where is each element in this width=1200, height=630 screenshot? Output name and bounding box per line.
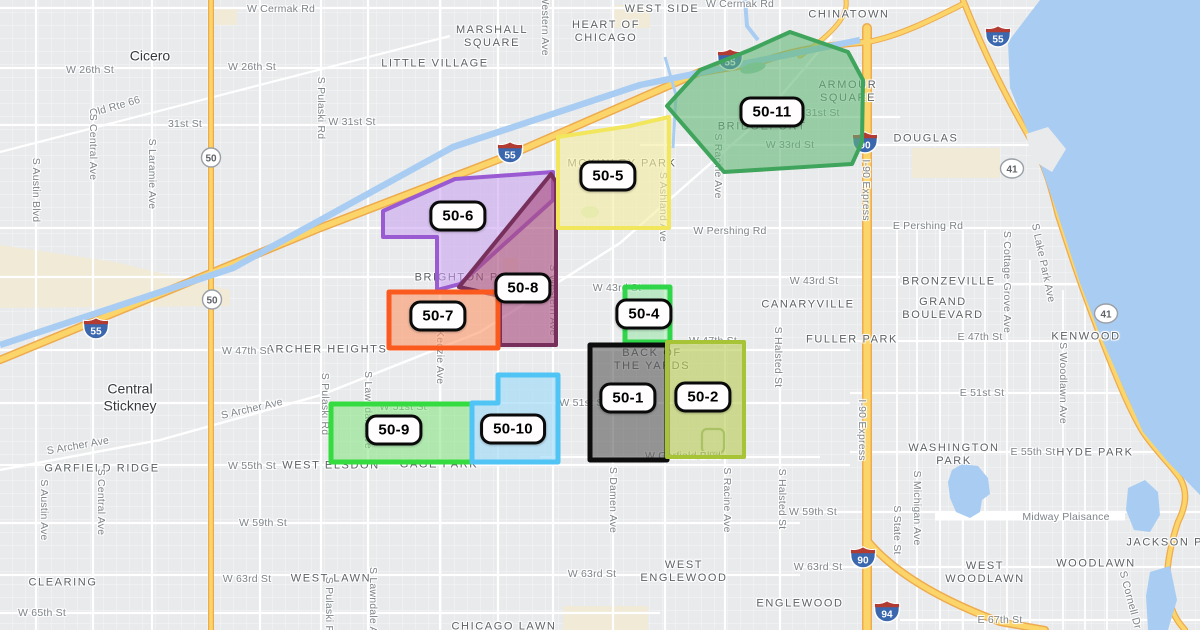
zone-labels-layer: 50-650-850-550-1150-750-450-150-250-950-… <box>0 0 1200 630</box>
zone-label-50-10[interactable]: 50-10 <box>480 414 546 445</box>
zone-label-50-9[interactable]: 50-9 <box>365 415 422 446</box>
zone-label-50-6[interactable]: 50-6 <box>429 201 486 232</box>
zone-label-50-11[interactable]: 50-11 <box>739 97 804 128</box>
zone-label-50-1[interactable]: 50-1 <box>599 383 656 414</box>
zone-label-50-2[interactable]: 50-2 <box>674 382 731 413</box>
zone-label-50-8[interactable]: 50-8 <box>494 273 551 304</box>
zone-label-50-5[interactable]: 50-5 <box>579 161 636 192</box>
zone-label-50-4[interactable]: 50-4 <box>615 299 672 330</box>
zone-label-50-7[interactable]: 50-7 <box>409 301 466 332</box>
map-canvas[interactable]: CiceroCentral StickneyMARSHALL SQUARELIT… <box>0 0 1200 630</box>
